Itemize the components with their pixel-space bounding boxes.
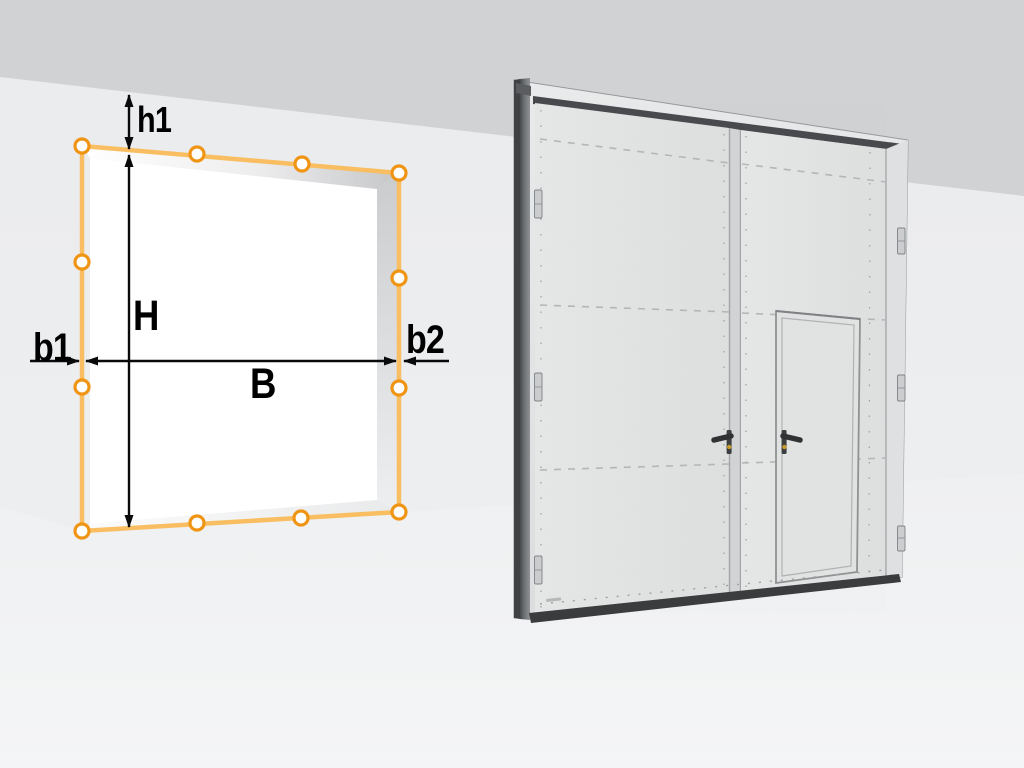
dimension-label-b1: b1 <box>33 328 71 368</box>
opening-marker-handle[interactable] <box>75 139 89 153</box>
opening-marker-handle[interactable] <box>75 524 89 538</box>
dimension-label-b2: b2 <box>406 320 444 360</box>
door-jamb-left-outer <box>514 79 520 619</box>
wall-opening <box>75 139 406 538</box>
opening-marker-handle[interactable] <box>294 511 308 525</box>
opening-marker-handle[interactable] <box>75 380 89 394</box>
dimension-label-h1: h1 <box>137 102 171 138</box>
opening-jamb-right <box>377 173 399 512</box>
hinge-icon <box>898 526 906 551</box>
dimension-label-H: H <box>133 295 159 338</box>
scene-canvas: h1 H B b1 b2 <box>0 0 1024 768</box>
door-jamb-left <box>520 78 530 620</box>
opening-marker-handle[interactable] <box>392 271 406 285</box>
opening-marker-handle[interactable] <box>190 516 204 530</box>
opening-interior <box>90 158 377 524</box>
opening-marker-handle[interactable] <box>392 166 406 180</box>
opening-marker-handle[interactable] <box>295 157 309 171</box>
panel-texture-overlay <box>535 103 886 613</box>
opening-marker-handle[interactable] <box>75 255 89 269</box>
dimension-label-B: B <box>250 363 276 406</box>
opening-marker-handle[interactable] <box>392 381 406 395</box>
opening-marker-handle[interactable] <box>190 147 204 161</box>
opening-marker-handle[interactable] <box>392 505 406 519</box>
door-preview <box>514 78 908 623</box>
